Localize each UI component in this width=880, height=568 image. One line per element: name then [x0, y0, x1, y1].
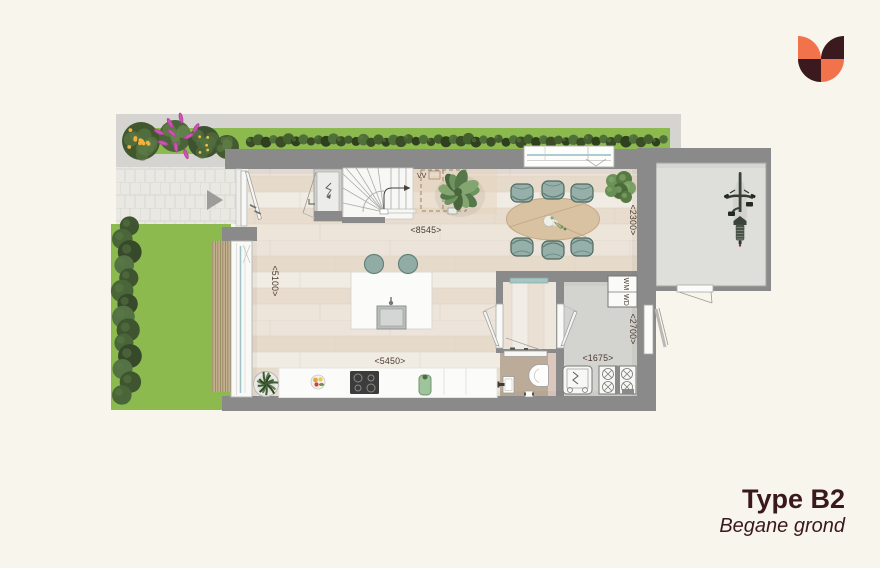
svg-text:<2300>: <2300> — [628, 204, 638, 235]
svg-text:<2700>: <2700> — [628, 313, 638, 344]
svg-text:WM: WM — [622, 278, 629, 291]
svg-text:<8545>: <8545> — [410, 225, 441, 235]
svg-text:WD: WD — [622, 294, 629, 306]
svg-text:<5100>: <5100> — [270, 265, 280, 296]
svg-text:<5450>: <5450> — [374, 356, 405, 366]
svg-text:Type B2: Type B2 — [742, 484, 845, 514]
svg-text:VV: VV — [417, 173, 427, 180]
svg-text:Begane grond: Begane grond — [719, 515, 846, 537]
svg-text:<1675>: <1675> — [582, 353, 613, 363]
